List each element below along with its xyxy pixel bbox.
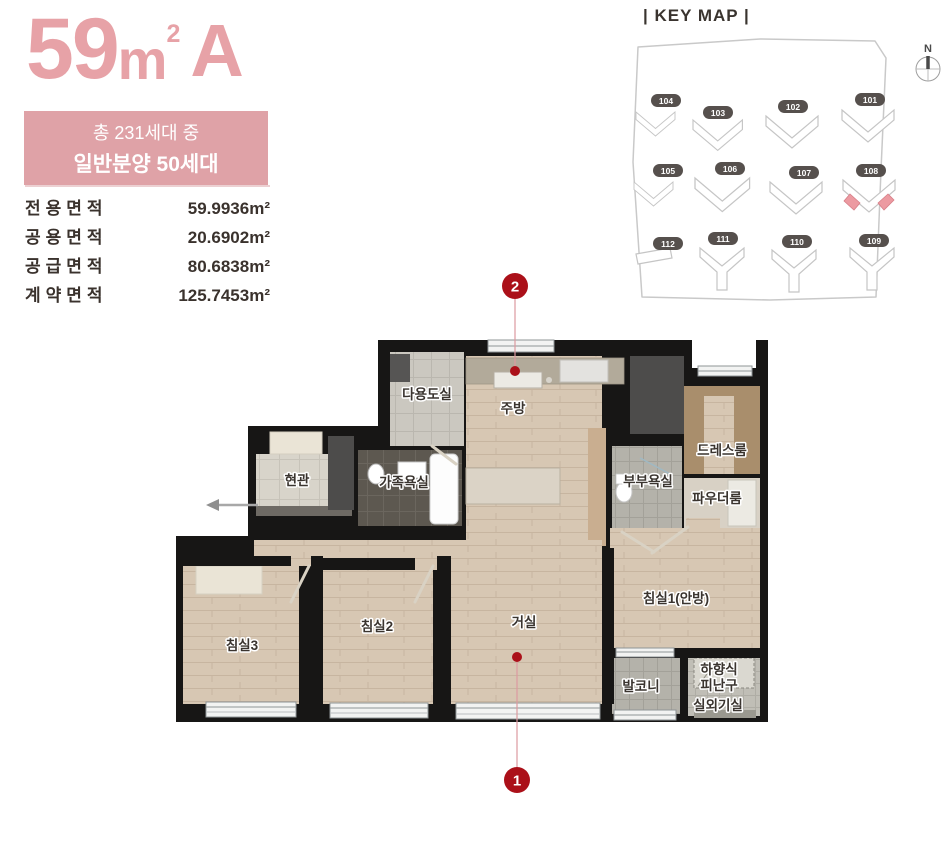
svg-text:102: 102	[786, 102, 800, 112]
badge-111: 111	[708, 232, 738, 245]
bed3-closet	[196, 566, 262, 594]
badge-103: 103	[703, 106, 733, 119]
svg-text:105: 105	[661, 166, 675, 176]
unit-type-title: 59 m 2 A	[26, 6, 242, 92]
keymap-title: | KEY MAP |	[643, 6, 750, 26]
total-households: 총 231세대 중	[93, 119, 199, 145]
label-bed3: 침실3	[226, 638, 259, 653]
window-living	[456, 703, 600, 719]
badge-102: 102	[778, 100, 808, 113]
room-living-floor	[451, 556, 602, 704]
compass-north-label: N	[924, 43, 932, 55]
brochure-page: 59 m 2 A 총 231세대 중 일반분양 50세대 전용면적 59.993…	[0, 0, 951, 853]
svg-text:108: 108	[864, 166, 878, 176]
label-dress: 드레스룸	[697, 443, 747, 458]
entrance-shoe-cabinet	[270, 432, 322, 454]
unit-size-number: 59	[26, 6, 118, 92]
unit-size-unit: m	[118, 32, 167, 88]
label-ac-room: 실외기실	[693, 697, 743, 713]
label-powder: 파우더룸	[692, 491, 742, 506]
label-kitchen: 주방	[501, 400, 526, 416]
household-count-badge: 총 231세대 중 일반분양 50세대	[24, 111, 268, 185]
room-bed1-floor	[610, 528, 760, 650]
room-dress-floor	[704, 396, 734, 474]
svg-text:110: 110	[790, 237, 804, 247]
label-living: 거실	[512, 615, 537, 630]
label-utility: 다용도실	[402, 387, 452, 402]
bed3-door-gap	[291, 552, 311, 566]
label-bed1: 침실1(안방)	[643, 590, 709, 606]
room-bed2-floor	[323, 568, 433, 704]
area-label: 공용면적	[25, 223, 108, 248]
badge-106: 106	[715, 162, 745, 175]
window-balcony-bottom	[614, 710, 676, 720]
badge-110: 110	[782, 235, 812, 248]
label-bed2: 침실2	[361, 619, 393, 634]
unit-size-superscript: 2	[166, 22, 178, 47]
badge-105: 105	[653, 164, 683, 177]
table-row: 공용면적 20.6902m²	[25, 223, 270, 252]
general-sale-households: 일반분양 50세대	[73, 148, 218, 178]
label-escape-1: 하향식	[700, 661, 737, 677]
entrance-closet	[328, 436, 354, 510]
window-kitchen	[488, 340, 554, 352]
washer-unit	[390, 354, 410, 382]
area-label: 전용면적	[25, 194, 108, 219]
badge-112: 112	[653, 237, 683, 250]
svg-text:109: 109	[867, 236, 881, 246]
area-value: 20.6902m²	[188, 228, 270, 248]
compass-icon: N	[916, 43, 940, 81]
marker-1-number: 1	[513, 773, 521, 790]
marker-2-number: 2	[511, 279, 519, 296]
badge-107: 107	[789, 166, 819, 179]
badge-101: 101	[855, 93, 885, 106]
label-master-bath: 부부욕실	[623, 474, 673, 489]
window-bed3	[206, 702, 296, 717]
kitchen-island	[466, 468, 560, 504]
kitchen-closet	[630, 356, 684, 434]
wall-notch	[692, 340, 756, 368]
family-bath-tub	[430, 454, 458, 524]
label-escape-2: 피난구	[700, 677, 737, 693]
kitchen-cooktop	[560, 360, 608, 382]
kitchen-faucet	[546, 377, 552, 383]
svg-text:107: 107	[797, 168, 811, 178]
bed1-door-gap	[686, 518, 720, 530]
area-label: 공급면적	[25, 252, 108, 277]
badge-109: 109	[859, 234, 889, 247]
badge-108: 108	[856, 164, 886, 177]
svg-text:112: 112	[661, 239, 675, 249]
svg-text:106: 106	[723, 164, 737, 174]
label-family-bath: 가족욕실	[379, 475, 429, 490]
area-value: 59.9936m²	[188, 199, 270, 219]
label-entrance: 현관	[285, 472, 310, 488]
svg-text:104: 104	[659, 96, 673, 106]
table-row: 전용면적 59.9936m²	[25, 194, 270, 223]
kitchen-cabinet-column	[588, 428, 606, 546]
svg-text:103: 103	[711, 108, 725, 118]
floorplan: 다용도실 주방 드레스룸 부부욕실 파우더룸 현관 가족욕실 침실3 침실2 거…	[170, 258, 770, 808]
svg-text:111: 111	[716, 234, 730, 244]
unit-type-letter: A	[190, 14, 241, 88]
svg-text:101: 101	[863, 95, 877, 105]
badge-104: 104	[651, 94, 681, 107]
area-label: 계약면적	[25, 281, 108, 306]
window-balcony-top	[616, 648, 674, 657]
window-bed2	[330, 703, 428, 718]
label-balcony: 발코니	[622, 678, 659, 694]
window-dress	[698, 366, 752, 376]
